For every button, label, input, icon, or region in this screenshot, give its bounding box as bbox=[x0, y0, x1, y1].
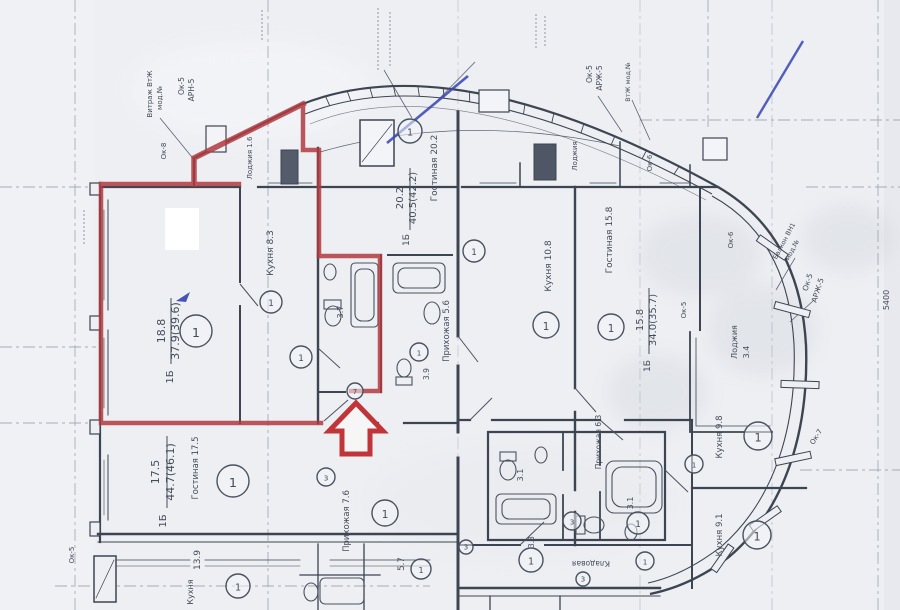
room-label: Кухня 9.1 bbox=[715, 514, 725, 557]
room-label: Лоджия 1.6 bbox=[246, 136, 254, 179]
axis-marker-number: 1 bbox=[643, 557, 648, 566]
room-label: Кухня 8.3 bbox=[266, 230, 276, 276]
room-label: 3.1 bbox=[626, 497, 635, 510]
axis-marker-number: 7 bbox=[353, 388, 357, 396]
room-label: 3.3 bbox=[527, 536, 536, 548]
room-label: 3.1 bbox=[516, 469, 525, 482]
room-label: Прихожая 5.6 bbox=[442, 300, 452, 362]
room-label: Лоджия bbox=[571, 141, 579, 170]
room-label: Гостиная 17.5 bbox=[191, 436, 201, 499]
axis-marker-number: 1 bbox=[418, 566, 423, 575]
room-label: Ок-6 bbox=[727, 231, 735, 248]
room-label: 3.7 bbox=[336, 306, 345, 319]
axis-marker-number: 1 bbox=[608, 323, 615, 335]
room-label: Прихожая 6.3 bbox=[594, 415, 603, 470]
room-label: Кладовая bbox=[572, 559, 610, 568]
room-label: 17.5 bbox=[149, 460, 162, 485]
axis-marker-number: 1 bbox=[382, 509, 389, 521]
axis-marker-number: 3 bbox=[324, 473, 329, 482]
axis-marker-number: 3 bbox=[464, 544, 468, 552]
room-label: Кухня 9.8 bbox=[715, 416, 725, 459]
room-label: Прихожая 7.6 bbox=[342, 490, 352, 552]
room-label: Ок-8 bbox=[160, 143, 168, 160]
room-label: 40.5(42.2) bbox=[408, 172, 419, 224]
room-label: Кухня bbox=[186, 579, 195, 604]
axis-marker-number: 1 bbox=[528, 557, 534, 568]
room-label: мод.№ bbox=[156, 86, 164, 110]
axis-marker-number: 3 bbox=[570, 517, 575, 526]
room-label: 34.0(35.7) bbox=[648, 294, 659, 346]
axis-marker-number: 1 bbox=[754, 431, 761, 444]
axis-marker-number: 1 bbox=[753, 530, 760, 543]
axis-marker-number: 1 bbox=[268, 299, 274, 309]
scanned-floor-plan: 18.837.9(39.6)1БКухня 8.320.240.5(42.2)1… bbox=[0, 0, 900, 610]
room-label: АРН-5 bbox=[187, 78, 196, 101]
room-label: 44.7(46.1) bbox=[164, 443, 177, 501]
room-label: 3.4 bbox=[742, 346, 751, 359]
axis-marker-number: 1 bbox=[192, 326, 200, 341]
room-label: АРЖ-5 bbox=[595, 65, 604, 90]
room-label: ВтЖ мод.№ bbox=[624, 62, 632, 102]
room-label: 20.2 bbox=[395, 187, 406, 209]
axis-marker-number: 3 bbox=[581, 576, 585, 584]
room-label: 1Б bbox=[158, 514, 169, 527]
room-label: 1Б bbox=[165, 370, 176, 383]
axis-marker-number: 1 bbox=[298, 354, 304, 364]
room-label: 1Б bbox=[643, 360, 653, 372]
room-label: Лоджия bbox=[730, 325, 739, 359]
axis-marker-number: 1 bbox=[417, 348, 422, 357]
room-label: 13.9 bbox=[193, 550, 203, 570]
room-label: Ок-5 bbox=[585, 65, 594, 83]
room-label: 1Б bbox=[402, 234, 412, 246]
room-label: Ок-6 bbox=[646, 154, 654, 171]
room-label: Ок-5 bbox=[68, 547, 76, 564]
room-label: Гостиная 20.2 bbox=[430, 135, 440, 202]
room-label: Гостиная 15.8 bbox=[605, 206, 615, 273]
room-label: 5400 bbox=[882, 290, 891, 310]
scan-erasure-patch bbox=[165, 208, 199, 250]
axis-marker-number: 1 bbox=[635, 520, 641, 530]
room-label: Витраж ВтЖ bbox=[146, 70, 154, 118]
axis-marker-number: 1 bbox=[235, 583, 241, 594]
floor-plan-svg: 18.837.9(39.6)1БКухня 8.320.240.5(42.2)1… bbox=[0, 0, 900, 610]
room-label: Ок-5 bbox=[680, 302, 688, 319]
axis-marker-number: 1 bbox=[407, 128, 413, 139]
room-label: Ок-5 bbox=[177, 77, 186, 95]
room-label: 15.8 bbox=[635, 309, 646, 331]
axis-marker-number: 1 bbox=[471, 248, 477, 258]
axis-marker-number: 1 bbox=[229, 476, 237, 491]
room-label: 5.7 bbox=[397, 557, 407, 571]
room-label: 18.8 bbox=[155, 319, 168, 344]
room-label: Кухня 10.8 bbox=[544, 240, 554, 292]
axis-marker-number: 1 bbox=[543, 321, 550, 333]
room-label: 3.9 bbox=[422, 368, 431, 380]
axis-marker-number: 1 bbox=[692, 460, 697, 469]
